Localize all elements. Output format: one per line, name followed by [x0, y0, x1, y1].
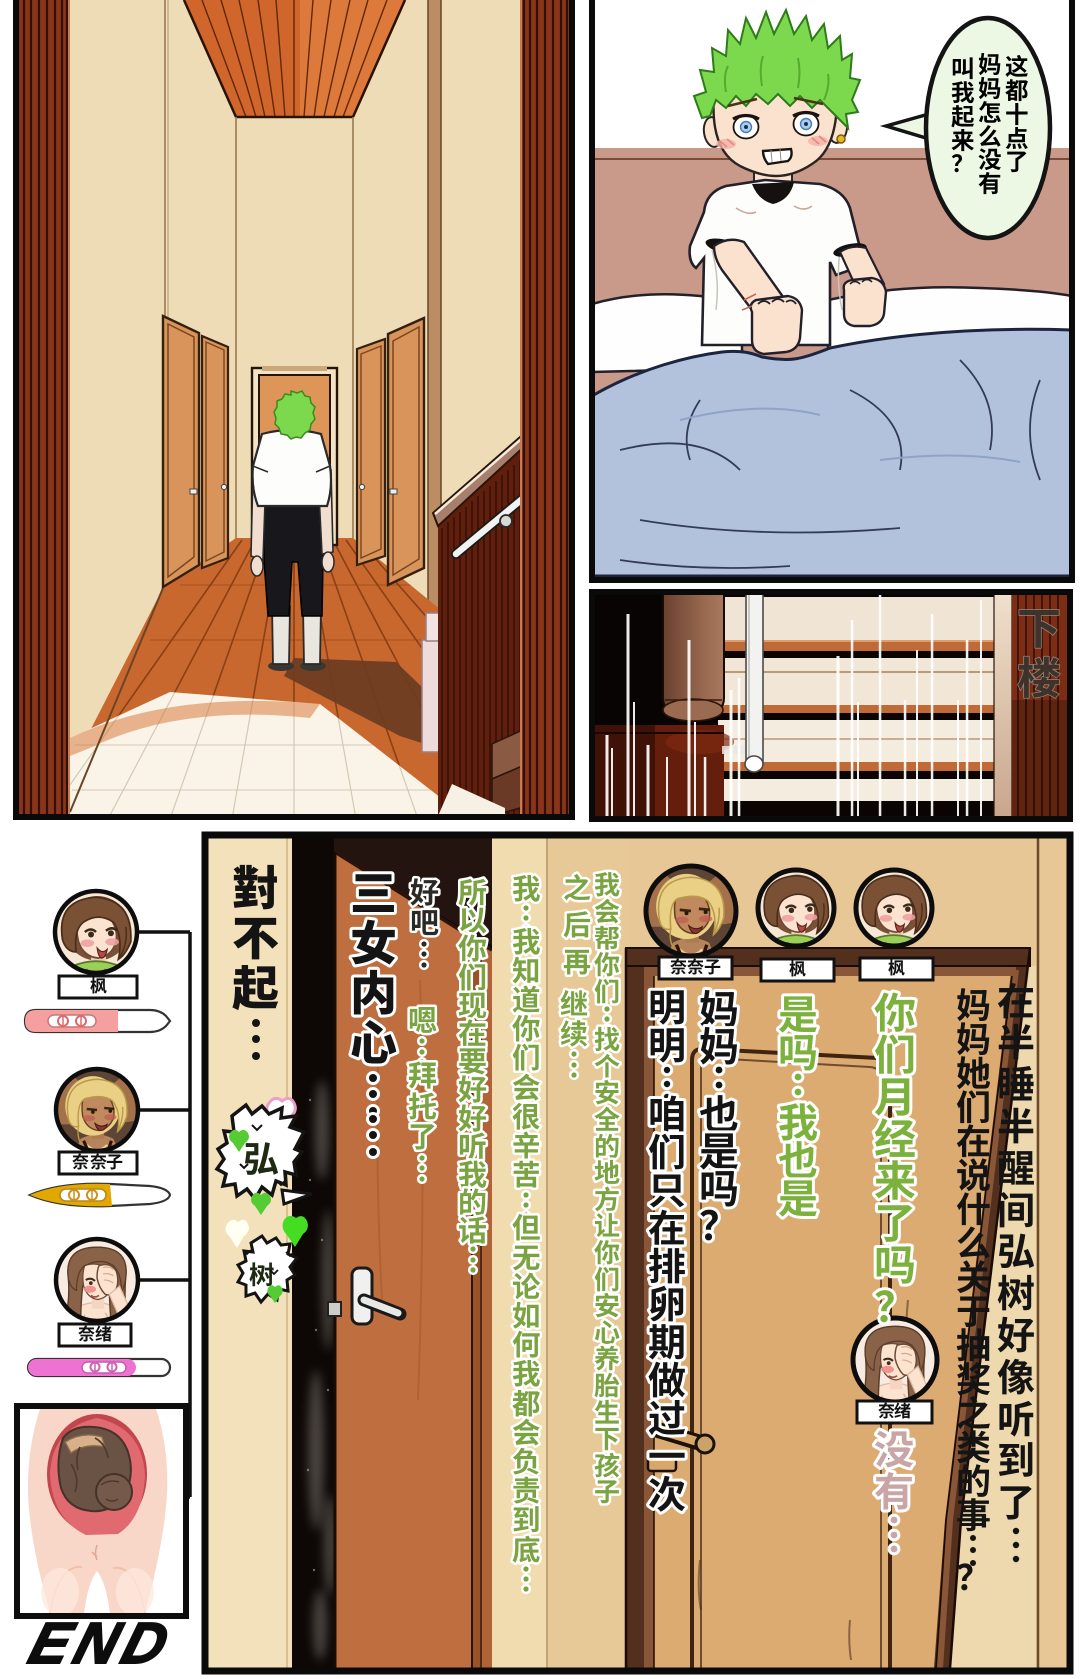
- svg-text:END: END: [22, 1610, 181, 1676]
